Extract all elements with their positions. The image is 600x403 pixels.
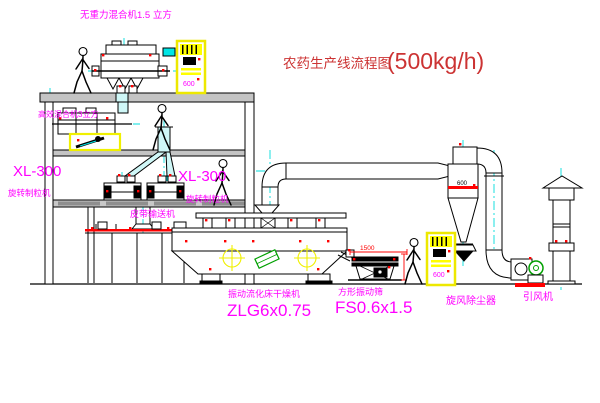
label-dryer-model: ZLG6x0.75	[227, 301, 311, 320]
label-granulator-left-model: XL-300	[13, 163, 61, 180]
label-high-speed-mixer: 高效混合机3立方	[38, 109, 98, 119]
drawing-title-capacity: (500kg/h)	[387, 48, 484, 74]
cabinet-mark-right: 600	[433, 272, 445, 279]
drawing-title: 农药生产线流程图	[283, 56, 391, 71]
label-granulator-right-model: XL-300	[178, 168, 226, 185]
dim-cyclone-mark: 600	[457, 181, 468, 187]
label-cyclone: 旋风除尘器	[446, 294, 496, 307]
granulator-left	[104, 176, 141, 200]
label-sieve-name: 方形振动筛	[338, 286, 383, 297]
dim-sieve-width: 1500	[360, 245, 375, 252]
person-figure	[405, 239, 422, 285]
person-figure	[74, 48, 91, 94]
label-gravity-mixer: 无重力混合机1.5 立方	[80, 9, 172, 21]
cyclone-separator	[448, 147, 512, 278]
vibrating-sieve	[346, 249, 407, 280]
cad-flow-diagram: 无重力混合机1.5 立方 农药生产线流程图 (500kg/h) 高效混合机3立方…	[0, 0, 600, 403]
label-granulator-right-name: 旋转制粒机	[186, 194, 229, 204]
label-belt-conveyor: 皮带输送机	[130, 208, 175, 219]
label-dryer-name: 振动流化床干燥机	[228, 288, 300, 299]
diagram-linework: 无重力混合机1.5 立方 农药生产线流程图 (500kg/h) 高效混合机3立方…	[0, 0, 600, 403]
exhaust-stack	[543, 176, 582, 284]
label-fan: 引风机	[523, 290, 553, 303]
label-granulator-left-name: 旋转制粒机	[8, 188, 51, 198]
feed-table	[85, 222, 186, 283]
induced-draft-fan	[511, 259, 545, 287]
cabinet-mark-left: 600	[183, 81, 195, 88]
label-sieve-model: FS0.6x1.5	[335, 298, 413, 317]
exhaust-duct	[262, 163, 450, 205]
fluid-bed-dryer	[172, 222, 353, 284]
